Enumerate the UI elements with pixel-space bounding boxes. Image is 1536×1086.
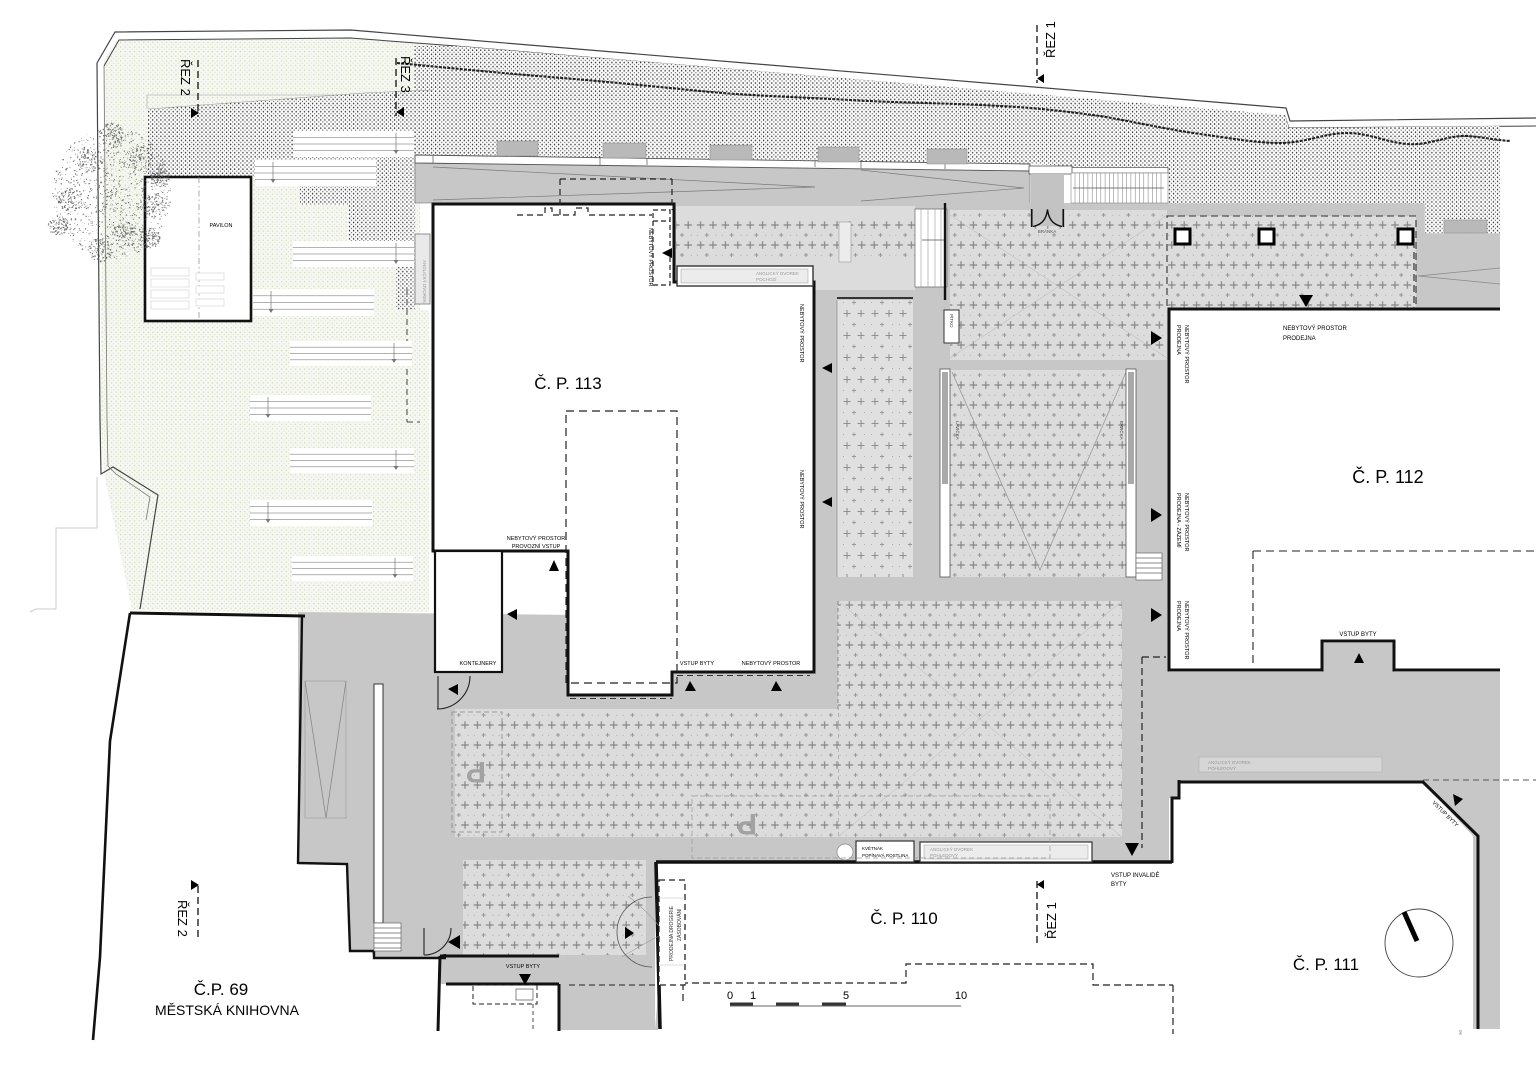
svg-text:BRÁNKA: BRÁNKA xyxy=(1038,228,1057,234)
svg-text:ANGLICKÝ DVOREK: ANGLICKÝ DVOREK xyxy=(422,260,428,303)
svg-text:ZÁSOBOVÁNÍ: ZÁSOBOVÁNÍ xyxy=(676,908,683,941)
svg-text:Č. P. 111: Č. P. 111 xyxy=(1293,955,1359,974)
svg-text:VSTUP BYTY: VSTUP BYTY xyxy=(506,964,540,970)
svg-text:NEBYTOVÝ PROSTOR: NEBYTOVÝ PROSTOR xyxy=(507,535,566,542)
svg-text:NEBYTOVÝ PROSTOR: NEBYTOVÝ PROSTOR xyxy=(798,304,805,363)
svg-text:ŘEZ 1: ŘEZ 1 xyxy=(1043,21,1058,58)
svg-text:Č. P. 112: Č. P. 112 xyxy=(1352,466,1423,487)
svg-text:NEBYTOVÝ PROSTOR: NEBYTOVÝ PROSTOR xyxy=(798,470,805,529)
svg-text:PRODEJNA DROGERIE: PRODEJNA DROGERIE xyxy=(669,905,675,961)
svg-text:MĚSTSKÁ KNIHOVNA: MĚSTSKÁ KNIHOVNA xyxy=(155,1002,300,1018)
svg-text:NEBYTOVÝ PROSTOR: NEBYTOVÝ PROSTOR xyxy=(742,660,801,667)
svg-text:P: P xyxy=(466,755,486,788)
svg-text:PROVOZNÍ VSTUP: PROVOZNÍ VSTUP xyxy=(512,543,561,550)
svg-text:LAVIČKA: LAVIČKA xyxy=(1119,421,1125,440)
svg-text:ANGLICKÝ DVOREK: ANGLICKÝ DVOREK xyxy=(756,270,799,276)
svg-text:PRODEJNA: PRODEJNA xyxy=(1283,336,1316,342)
svg-text:VSTUP INVALIDÉ: VSTUP INVALIDÉ xyxy=(1111,872,1159,879)
svg-text:ŘEZ 3: ŘEZ 3 xyxy=(398,56,413,93)
svg-text:06: 06 xyxy=(1458,1030,1463,1036)
svg-text:VSTUP BYTY: VSTUP BYTY xyxy=(1339,632,1376,638)
svg-text:NEBYTOVÝ PROSTOR: NEBYTOVÝ PROSTOR xyxy=(1183,325,1190,384)
svg-text:Č.P. 69: Č.P. 69 xyxy=(194,980,249,999)
svg-text:PRODEJNA: PRODEJNA xyxy=(1175,325,1181,355)
svg-text:POPÍNAVÁ ROSTLINA: POPÍNAVÁ ROSTLINA xyxy=(862,852,908,858)
svg-text:POHLEDOVÝ: POHLEDOVÝ xyxy=(930,852,958,858)
svg-text:NEBYTOVÝ PROSTOR: NEBYTOVÝ PROSTOR xyxy=(1283,325,1347,332)
svg-text:KVĚTNÁK: KVĚTNÁK xyxy=(862,844,883,851)
svg-text:POCHOZÍ: POCHOZÍ xyxy=(756,276,777,282)
svg-text:0: 0 xyxy=(727,990,733,1002)
svg-text:PRODEJNA - ZÁZEMÍ: PRODEJNA - ZÁZEMÍ xyxy=(1175,493,1182,548)
svg-text:PRODEJNA: PRODEJNA xyxy=(1175,601,1181,631)
svg-text:KONTEJNERY: KONTEJNERY xyxy=(460,661,497,667)
svg-text:NEBYTOVÝ PROSTOR: NEBYTOVÝ PROSTOR xyxy=(1183,601,1190,660)
svg-text:ŘEZ 1: ŘEZ 1 xyxy=(1044,902,1059,939)
svg-text:ANGLICKÝ DVOREK: ANGLICKÝ DVOREK xyxy=(1208,759,1251,765)
svg-text:LAVIČKA: LAVIČKA xyxy=(955,421,961,440)
svg-text:PAVILON: PAVILON xyxy=(209,223,232,229)
svg-text:BYTY: BYTY xyxy=(1111,882,1127,888)
svg-text:1: 1 xyxy=(750,990,756,1002)
svg-text:Č. P. 110: Č. P. 110 xyxy=(870,909,937,928)
svg-text:POHLEDOVÝ: POHLEDOVÝ xyxy=(1208,765,1236,771)
svg-text:ŘEZ 2: ŘEZ 2 xyxy=(178,59,193,96)
svg-text:Č. P. 113: Č. P. 113 xyxy=(534,374,601,393)
svg-text:NEBYTOVÝ PROSTOR: NEBYTOVÝ PROSTOR xyxy=(647,228,654,287)
svg-text:P: P xyxy=(737,807,757,840)
svg-text:PÍTKO: PÍTKO xyxy=(949,314,955,328)
svg-text:ANGLICKÝ DVOREK: ANGLICKÝ DVOREK xyxy=(930,846,973,852)
svg-text:VSTUP BYTY: VSTUP BYTY xyxy=(680,661,714,667)
svg-text:ŘEZ 2: ŘEZ 2 xyxy=(175,900,190,937)
svg-text:10: 10 xyxy=(955,990,967,1002)
svg-text:5: 5 xyxy=(843,990,849,1002)
svg-text:NEBYTOVÝ PROSTOR: NEBYTOVÝ PROSTOR xyxy=(1183,493,1190,552)
